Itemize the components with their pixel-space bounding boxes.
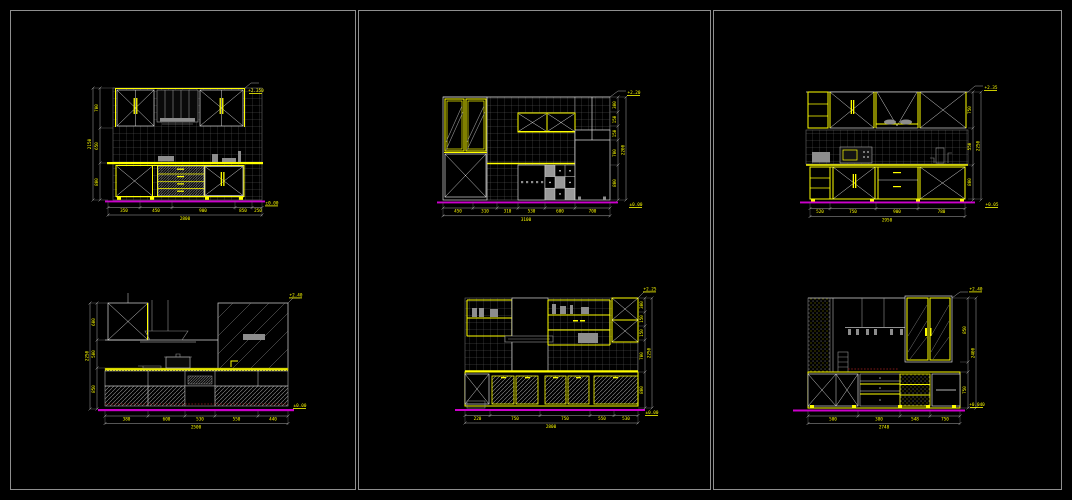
dim-label: 380 <box>875 417 883 423</box>
dim-label: 750 <box>511 416 519 422</box>
dim-label: 600 <box>163 417 171 423</box>
dim-label: 650 <box>94 142 100 150</box>
backsplash-tiles <box>806 130 968 164</box>
elevation-drawing-2: 450 310 310 530 600 700 3100 300 150 150… <box>425 85 650 225</box>
cad-model-space: 350 450 900 850 250 2800 700 650 800 215… <box>0 0 1072 500</box>
dim-total-label: 2150 <box>87 138 93 149</box>
dim-label: 750 <box>561 416 569 422</box>
dim-label: 850 <box>962 326 968 334</box>
dimensions-bottom: 500 380 548 750 2748 <box>807 411 962 431</box>
dim-label: 600 <box>556 209 564 215</box>
dim-total-label: 2250 <box>976 140 982 151</box>
dim-label: 310 <box>481 209 489 215</box>
dim-label: 750 <box>967 106 973 114</box>
drawer-stack <box>860 374 900 406</box>
dimensions-bottom: 350 450 900 850 250 2800 <box>107 201 264 222</box>
dim-label: 440 <box>269 417 277 423</box>
dimensions-bottom: 380 600 530 550 440 2500 <box>104 411 290 431</box>
dim-total-label: 2200 <box>621 144 627 155</box>
glass-door-cabinet <box>905 296 952 362</box>
glass-panel <box>218 303 288 370</box>
dim-total-label: 2800 <box>180 216 191 222</box>
tall-cabinet-right <box>612 298 638 342</box>
dim-label: 800 <box>612 179 618 187</box>
upper-cabinets <box>808 92 966 128</box>
dimensions-left: 700 650 800 2150 <box>87 87 115 202</box>
dimensions-bottom: 220 750 750 550 530 2800 <box>464 411 640 430</box>
dimensions-bottom: 450 310 310 530 600 700 3100 <box>442 202 612 223</box>
base-cabinets <box>116 166 244 200</box>
dim-label: 800 <box>94 178 100 186</box>
dim-label: 550 <box>967 142 973 150</box>
dim-label: 310 <box>504 209 512 215</box>
dim-label: 350 <box>120 208 128 214</box>
dim-label: 550 <box>598 416 606 422</box>
dim-label: 700 <box>94 104 100 112</box>
dim-label: 900 <box>199 208 207 214</box>
dim-total-label: 2250 <box>647 347 653 358</box>
base-cabinets <box>465 372 638 408</box>
dim-label: 250 <box>254 208 262 214</box>
dim-label: 150 <box>612 129 618 137</box>
dim-label: 450 <box>454 209 462 215</box>
dim-label: 600 <box>91 318 97 326</box>
hanging-rack <box>845 298 915 335</box>
drawer-stack <box>158 167 204 196</box>
dim-label: 700 <box>639 352 645 360</box>
ground-line <box>800 202 975 204</box>
dimensions-right: 300 150 150 700 800 2200 <box>610 96 628 202</box>
dim-label: 900 <box>893 209 901 215</box>
dim-label: 220 <box>474 416 482 422</box>
dim-label: 150 <box>639 329 645 337</box>
step-ladder <box>838 352 848 372</box>
ground-line <box>793 410 965 412</box>
base-cabinets <box>105 371 288 406</box>
dim-label: 450 <box>152 208 160 214</box>
dim-label: 750 <box>941 417 949 423</box>
range-hood <box>157 90 198 124</box>
range-hood <box>140 300 196 342</box>
dim-label: 780 <box>938 209 946 215</box>
elevation-drawing-4: 600 500 850 2250 380 600 530 550 440 250… <box>75 290 300 445</box>
dim-label: 520 <box>816 209 824 215</box>
dim-label: 530 <box>196 417 204 423</box>
dim-label: 530 <box>622 416 630 422</box>
ground-line <box>455 409 645 411</box>
ground-line <box>98 409 294 411</box>
dim-label: 550 <box>233 417 241 423</box>
dim-total-label: 2800 <box>546 424 557 430</box>
dim-label: 500 <box>91 350 97 358</box>
elevation-drawing-3: 520 750 900 780 2950 750 550 800 2250 +2… <box>795 75 1010 230</box>
dim-label: 700 <box>612 149 618 157</box>
dim-label: 850 <box>91 385 97 393</box>
oven-stack <box>545 165 575 200</box>
dim-label: 750 <box>849 209 857 215</box>
upper-cabinets <box>115 88 245 127</box>
dim-label: 750 <box>962 386 968 394</box>
countertop <box>107 162 263 164</box>
base-cabinets <box>810 167 965 202</box>
dim-label: 800 <box>639 386 645 394</box>
dim-label: 700 <box>589 209 597 215</box>
base-cabinets <box>808 372 960 409</box>
microwave <box>840 147 872 163</box>
dimensions-bottom: 520 750 900 780 2950 <box>809 202 967 224</box>
elevation-drawing-5: 220 750 750 550 530 2800 300 150 150 700… <box>450 285 655 450</box>
dim-label: 800 <box>967 178 973 186</box>
upper-cabinets <box>518 113 575 132</box>
tall-cabinet <box>443 97 487 200</box>
dim-total-label: 3100 <box>521 217 532 223</box>
ground-line <box>437 202 618 204</box>
elevation-drawing-6: 500 380 548 750 2748 850 750 2400 +2.40 … <box>790 285 1000 450</box>
dim-label: 548 <box>911 417 919 423</box>
dim-label: 300 <box>639 301 645 309</box>
upper-cabinet <box>108 293 148 340</box>
dimensions-left: 600 500 850 2250 <box>85 302 109 411</box>
dimensions-right: 300 150 150 700 800 2250 <box>638 297 654 410</box>
hatched-wall-strip <box>808 298 830 372</box>
ground-line <box>105 201 265 203</box>
dim-label: 530 <box>528 209 536 215</box>
dim-total-label: 2500 <box>191 425 202 431</box>
dimensions-right: 750 550 800 2250 <box>967 91 983 202</box>
dim-label: 380 <box>123 417 131 423</box>
dim-total-label: 2950 <box>882 218 893 224</box>
dim-total-label: 2748 <box>879 425 890 431</box>
dim-total-label: 2250 <box>85 350 91 361</box>
countertop <box>105 368 288 371</box>
dim-label: 150 <box>612 115 618 123</box>
dim-label: 300 <box>612 101 618 109</box>
range-hood-column <box>505 298 553 372</box>
dim-label: 500 <box>829 417 837 423</box>
dim-label: 150 <box>639 315 645 323</box>
dim-total-label: 2400 <box>971 347 977 358</box>
elevation-drawing-1: 350 450 900 850 250 2800 700 650 800 215… <box>85 75 300 235</box>
dim-label: 850 <box>239 208 247 214</box>
